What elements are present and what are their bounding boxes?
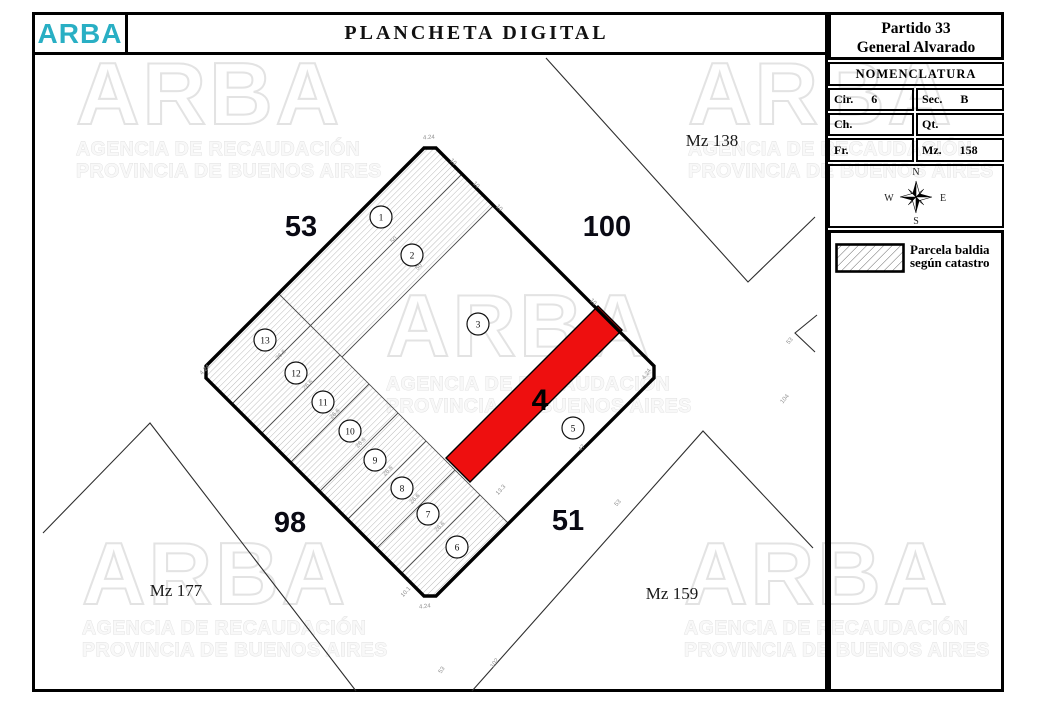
dimension-label: 102 <box>490 657 501 669</box>
street-number-53: 53 <box>285 211 317 243</box>
parcel-9-marker[interactable]: 9 <box>364 449 386 471</box>
parcel-7-marker[interactable]: 7 <box>417 503 439 525</box>
parcel-number: 3 <box>476 320 481 330</box>
parcel-number: 6 <box>455 543 460 553</box>
arba-logo: ARBA <box>38 18 123 50</box>
block-east-corner <box>795 315 817 352</box>
vacant-parcel-swatch-icon <box>835 243 905 273</box>
compass-panel: N E S W <box>828 164 1004 228</box>
parcel-2-marker[interactable]: 2 <box>401 244 423 266</box>
field-cir-value: 6 <box>871 92 877 107</box>
arba-logo-box: ARBA <box>32 12 128 55</box>
parcel-number: 11 <box>318 398 327 408</box>
parcel-number: 12 <box>291 369 301 379</box>
compass-south-label: S <box>913 216 919 226</box>
parcel-12-marker[interactable]: 12 <box>285 362 307 384</box>
parcel-number: 13 <box>260 336 270 346</box>
field-chacra: Ch. <box>828 113 914 136</box>
street-number-100: 100 <box>583 211 631 243</box>
legend-panel: Parcela baldia según catastro <box>828 230 1004 692</box>
page-title: PLANCHETA DIGITAL <box>344 22 608 45</box>
block-mz159-corner <box>472 431 813 691</box>
block-mz138-corner <box>546 58 815 282</box>
nomenclatura-title: NOMENCLATURA <box>856 67 977 82</box>
field-sec-value: B <box>960 92 968 107</box>
partido-name: General Alvarado <box>831 38 1001 57</box>
field-sec-label: Sec. <box>922 92 942 107</box>
field-fr-label: Fr. <box>834 143 849 158</box>
compass-rose-icon: N E S W <box>831 166 1001 226</box>
parcel-10-marker[interactable]: 10 <box>339 420 361 442</box>
parcel-3-marker[interactable]: 3 <box>467 313 489 335</box>
block-label-mz-138: Mz 138 <box>686 131 738 150</box>
street-number-98: 98 <box>274 507 306 539</box>
field-cir-label: Cir. <box>834 92 853 107</box>
street-number-51: 51 <box>552 505 584 537</box>
field-fraccion: Fr. <box>828 138 914 162</box>
field-manzana: Mz. 158 <box>916 138 1004 162</box>
cadastral-map: 4 1235678910111213 4.24101010104.244713.… <box>32 52 828 692</box>
parcel-6-marker[interactable]: 6 <box>446 536 468 558</box>
compass-west-label: W <box>884 193 894 204</box>
field-mz-label: Mz. <box>922 143 942 158</box>
dimension-label: 10.1 <box>400 585 413 598</box>
parcel-1-marker[interactable]: 1 <box>370 206 392 228</box>
nomenclatura-header: NOMENCLATURA <box>828 62 1004 86</box>
parcel-number: 8 <box>400 484 405 494</box>
field-quinta: Qt. <box>916 113 1004 136</box>
dimension-label: 53 <box>786 336 795 345</box>
plancheta-digital-page: ARBA AGENCIA DE RECAUDACIÓN PROVINCIA DE… <box>0 0 1040 720</box>
block-label-mz-159: Mz 159 <box>646 584 698 603</box>
parcel-11-marker[interactable]: 11 <box>312 391 334 413</box>
field-mz-value: 158 <box>960 143 978 158</box>
compass-east-label: E <box>940 193 946 204</box>
parcel-number: 7 <box>426 510 431 520</box>
dimension-label: 53 <box>438 665 447 674</box>
dimension-label: 10 <box>494 204 503 213</box>
field-seccion: Sec. B <box>916 88 1004 111</box>
block-label-mz-177: Mz 177 <box>150 581 203 600</box>
title-bar: PLANCHETA DIGITAL <box>125 12 828 55</box>
dimension-label: 53 <box>614 498 623 507</box>
dimension-label: 104 <box>780 393 791 405</box>
partido-panel: Partido 33 General Alvarado <box>828 12 1004 60</box>
parcel-4-label: 4 <box>532 384 549 417</box>
compass-north-label: N <box>912 167 919 178</box>
legend-line2: según catastro <box>910 256 990 269</box>
dimension-label: 4.24 <box>423 135 436 142</box>
parcel-5-marker[interactable]: 5 <box>562 417 584 439</box>
partido-number: Partido 33 <box>831 19 1001 38</box>
field-ch-label: Ch. <box>834 117 852 132</box>
parcel-13-marker[interactable]: 13 <box>254 329 276 351</box>
dimension-label: 4.24 <box>419 603 432 610</box>
parcel-8-marker[interactable]: 8 <box>391 477 413 499</box>
parcel-number: 10 <box>345 427 355 437</box>
parcel-number: 1 <box>379 213 384 223</box>
parcel-number: 5 <box>571 424 576 434</box>
field-circunscripcion: Cir. 6 <box>828 88 914 111</box>
parcel-number: 2 <box>410 251 415 261</box>
legend-caption: Parcela baldia según catastro <box>910 243 990 269</box>
dimension-label: 10 <box>588 298 597 307</box>
parcel-number: 9 <box>373 456 378 466</box>
field-qt-label: Qt. <box>922 117 938 132</box>
dimension-label: 13.3 <box>495 483 508 496</box>
